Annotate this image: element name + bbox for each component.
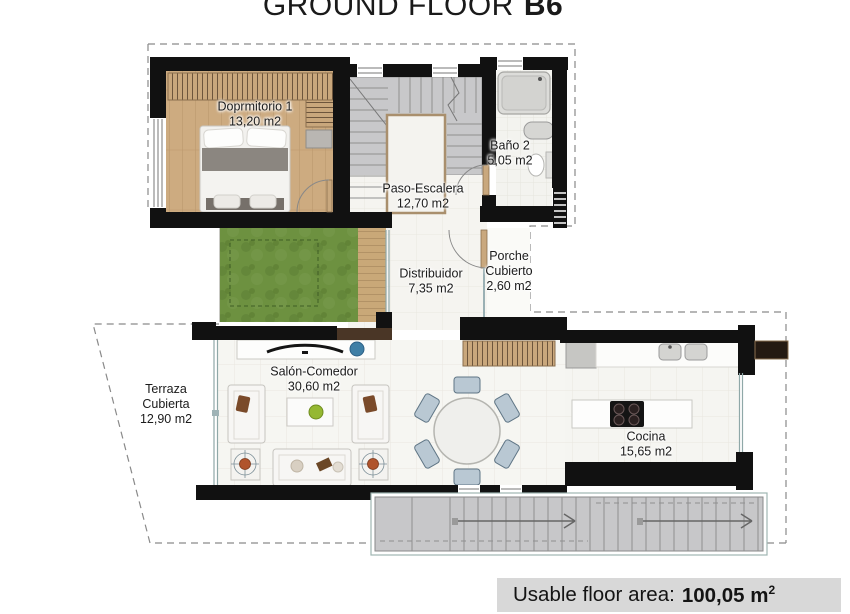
bed-cushion-right xyxy=(250,195,276,208)
room-label-salon: Salón-Comedor 30,60 m2 xyxy=(270,364,358,394)
plant-left-pot xyxy=(240,459,251,470)
wall xyxy=(150,57,350,71)
bed-duvet xyxy=(202,171,288,198)
bathroom-door-leaf xyxy=(483,165,489,195)
wall-louver xyxy=(553,188,567,228)
wall xyxy=(333,64,350,212)
burner xyxy=(629,415,639,425)
toilet-tank xyxy=(546,152,553,178)
wall xyxy=(460,317,567,340)
room-area: 7,35 m2 xyxy=(399,281,462,296)
room-name: Doprmitorio 1 xyxy=(217,99,292,114)
usable-area-bar: Usable floor area: 100,05 m2 xyxy=(497,578,841,612)
sofa-bottom-cushion2 xyxy=(333,462,343,472)
room-area: 15,65 m2 xyxy=(620,444,672,459)
usable-area-label: Usable floor area: xyxy=(513,583,675,607)
wall-stub-right xyxy=(755,341,788,359)
sofa-bottom-cushion xyxy=(291,460,303,472)
room-name: Cocina xyxy=(620,429,672,444)
room-name: Porche xyxy=(485,249,532,264)
shower-tray-inner xyxy=(502,76,546,110)
room-area: 30,60 m2 xyxy=(270,379,358,394)
room-name: Baño 2 xyxy=(487,138,532,153)
kitchen-window-right xyxy=(740,373,743,452)
steps-arrow-start-2 xyxy=(637,518,643,525)
room-label-dormitorio: Doprmitorio 1 13,20 m2 xyxy=(217,99,292,129)
washbasin xyxy=(524,122,554,139)
burner xyxy=(629,404,639,414)
wall xyxy=(482,195,496,206)
bed-cushion-left xyxy=(214,195,240,208)
wardrobe-side xyxy=(306,100,334,127)
wood-deck xyxy=(358,226,386,322)
burner xyxy=(614,404,624,414)
room-name: Terraza xyxy=(140,382,192,397)
wall xyxy=(192,322,216,338)
decor-blue-bowl xyxy=(350,342,364,356)
usable-area-sup: 2 xyxy=(768,583,775,597)
wall xyxy=(560,330,755,343)
room-label-porche: Porche Cubierto 2,60 m2 xyxy=(485,249,532,293)
fridge xyxy=(566,341,596,368)
wardrobe-top xyxy=(168,73,334,100)
stair-window-left xyxy=(357,64,383,77)
room-label-bano: Baño 2 5,05 m2 xyxy=(487,138,532,168)
steps-arrow-start-1 xyxy=(452,518,458,525)
room-label-cocina: Cocina 15,65 m2 xyxy=(620,429,672,459)
bed-pillow-right xyxy=(246,128,286,149)
wall xyxy=(552,57,567,188)
wall-lintel-wood xyxy=(337,328,392,340)
burner xyxy=(614,415,624,425)
sink-tap xyxy=(668,345,672,349)
stair-window-right xyxy=(432,64,458,77)
room-name: Salón-Comedor xyxy=(270,364,358,379)
wall xyxy=(480,206,556,222)
room-label-paso-escalera: Paso-Escalera 12,70 m2 xyxy=(382,181,463,211)
shower-drain xyxy=(538,77,542,81)
exterior-steps xyxy=(371,493,767,555)
floorplan-page: GROUND FLOORB6 xyxy=(0,0,850,614)
bedside-table xyxy=(306,130,332,148)
living-glass-marker xyxy=(212,410,219,416)
sink-basin-right xyxy=(685,344,707,360)
room-label-distribuidor: Distribuidor 7,35 m2 xyxy=(399,266,462,296)
dining-table xyxy=(434,398,500,464)
room-area: 12,90 m2 xyxy=(140,411,192,426)
room-area: 12,70 m2 xyxy=(382,196,463,211)
room-label-terraza: Terraza Cubierta 12,90 m2 xyxy=(140,382,192,426)
bedroom-door-leaf xyxy=(327,180,332,212)
bed-pillow-left xyxy=(203,128,243,149)
room-name: Cubierto xyxy=(485,264,532,279)
room-name: Cubierta xyxy=(140,397,192,412)
room-name: Distribuidor xyxy=(399,266,462,281)
wall xyxy=(376,312,392,328)
plant-right-pot xyxy=(368,459,379,470)
decor-green-apple xyxy=(309,405,323,419)
room-name: Paso-Escalera xyxy=(382,181,463,196)
dining-chair xyxy=(454,377,480,393)
room-area: 5,05 m2 xyxy=(487,153,532,168)
wall xyxy=(565,462,750,486)
bathroom-window xyxy=(497,57,523,70)
bed-blanket xyxy=(202,148,288,171)
tv-stand xyxy=(302,351,308,354)
room-area: 2,60 m2 xyxy=(485,278,532,293)
floor-plan-drawing xyxy=(0,0,850,614)
dining-chair xyxy=(454,469,480,485)
room-area: 13,20 m2 xyxy=(217,114,292,129)
usable-area-value: 100,05 m2 xyxy=(682,583,775,608)
usable-area-number: 100,05 m xyxy=(682,583,769,606)
wall xyxy=(150,57,166,118)
wall xyxy=(150,212,392,228)
wall xyxy=(738,325,755,375)
wardrobe-hall xyxy=(463,341,555,366)
